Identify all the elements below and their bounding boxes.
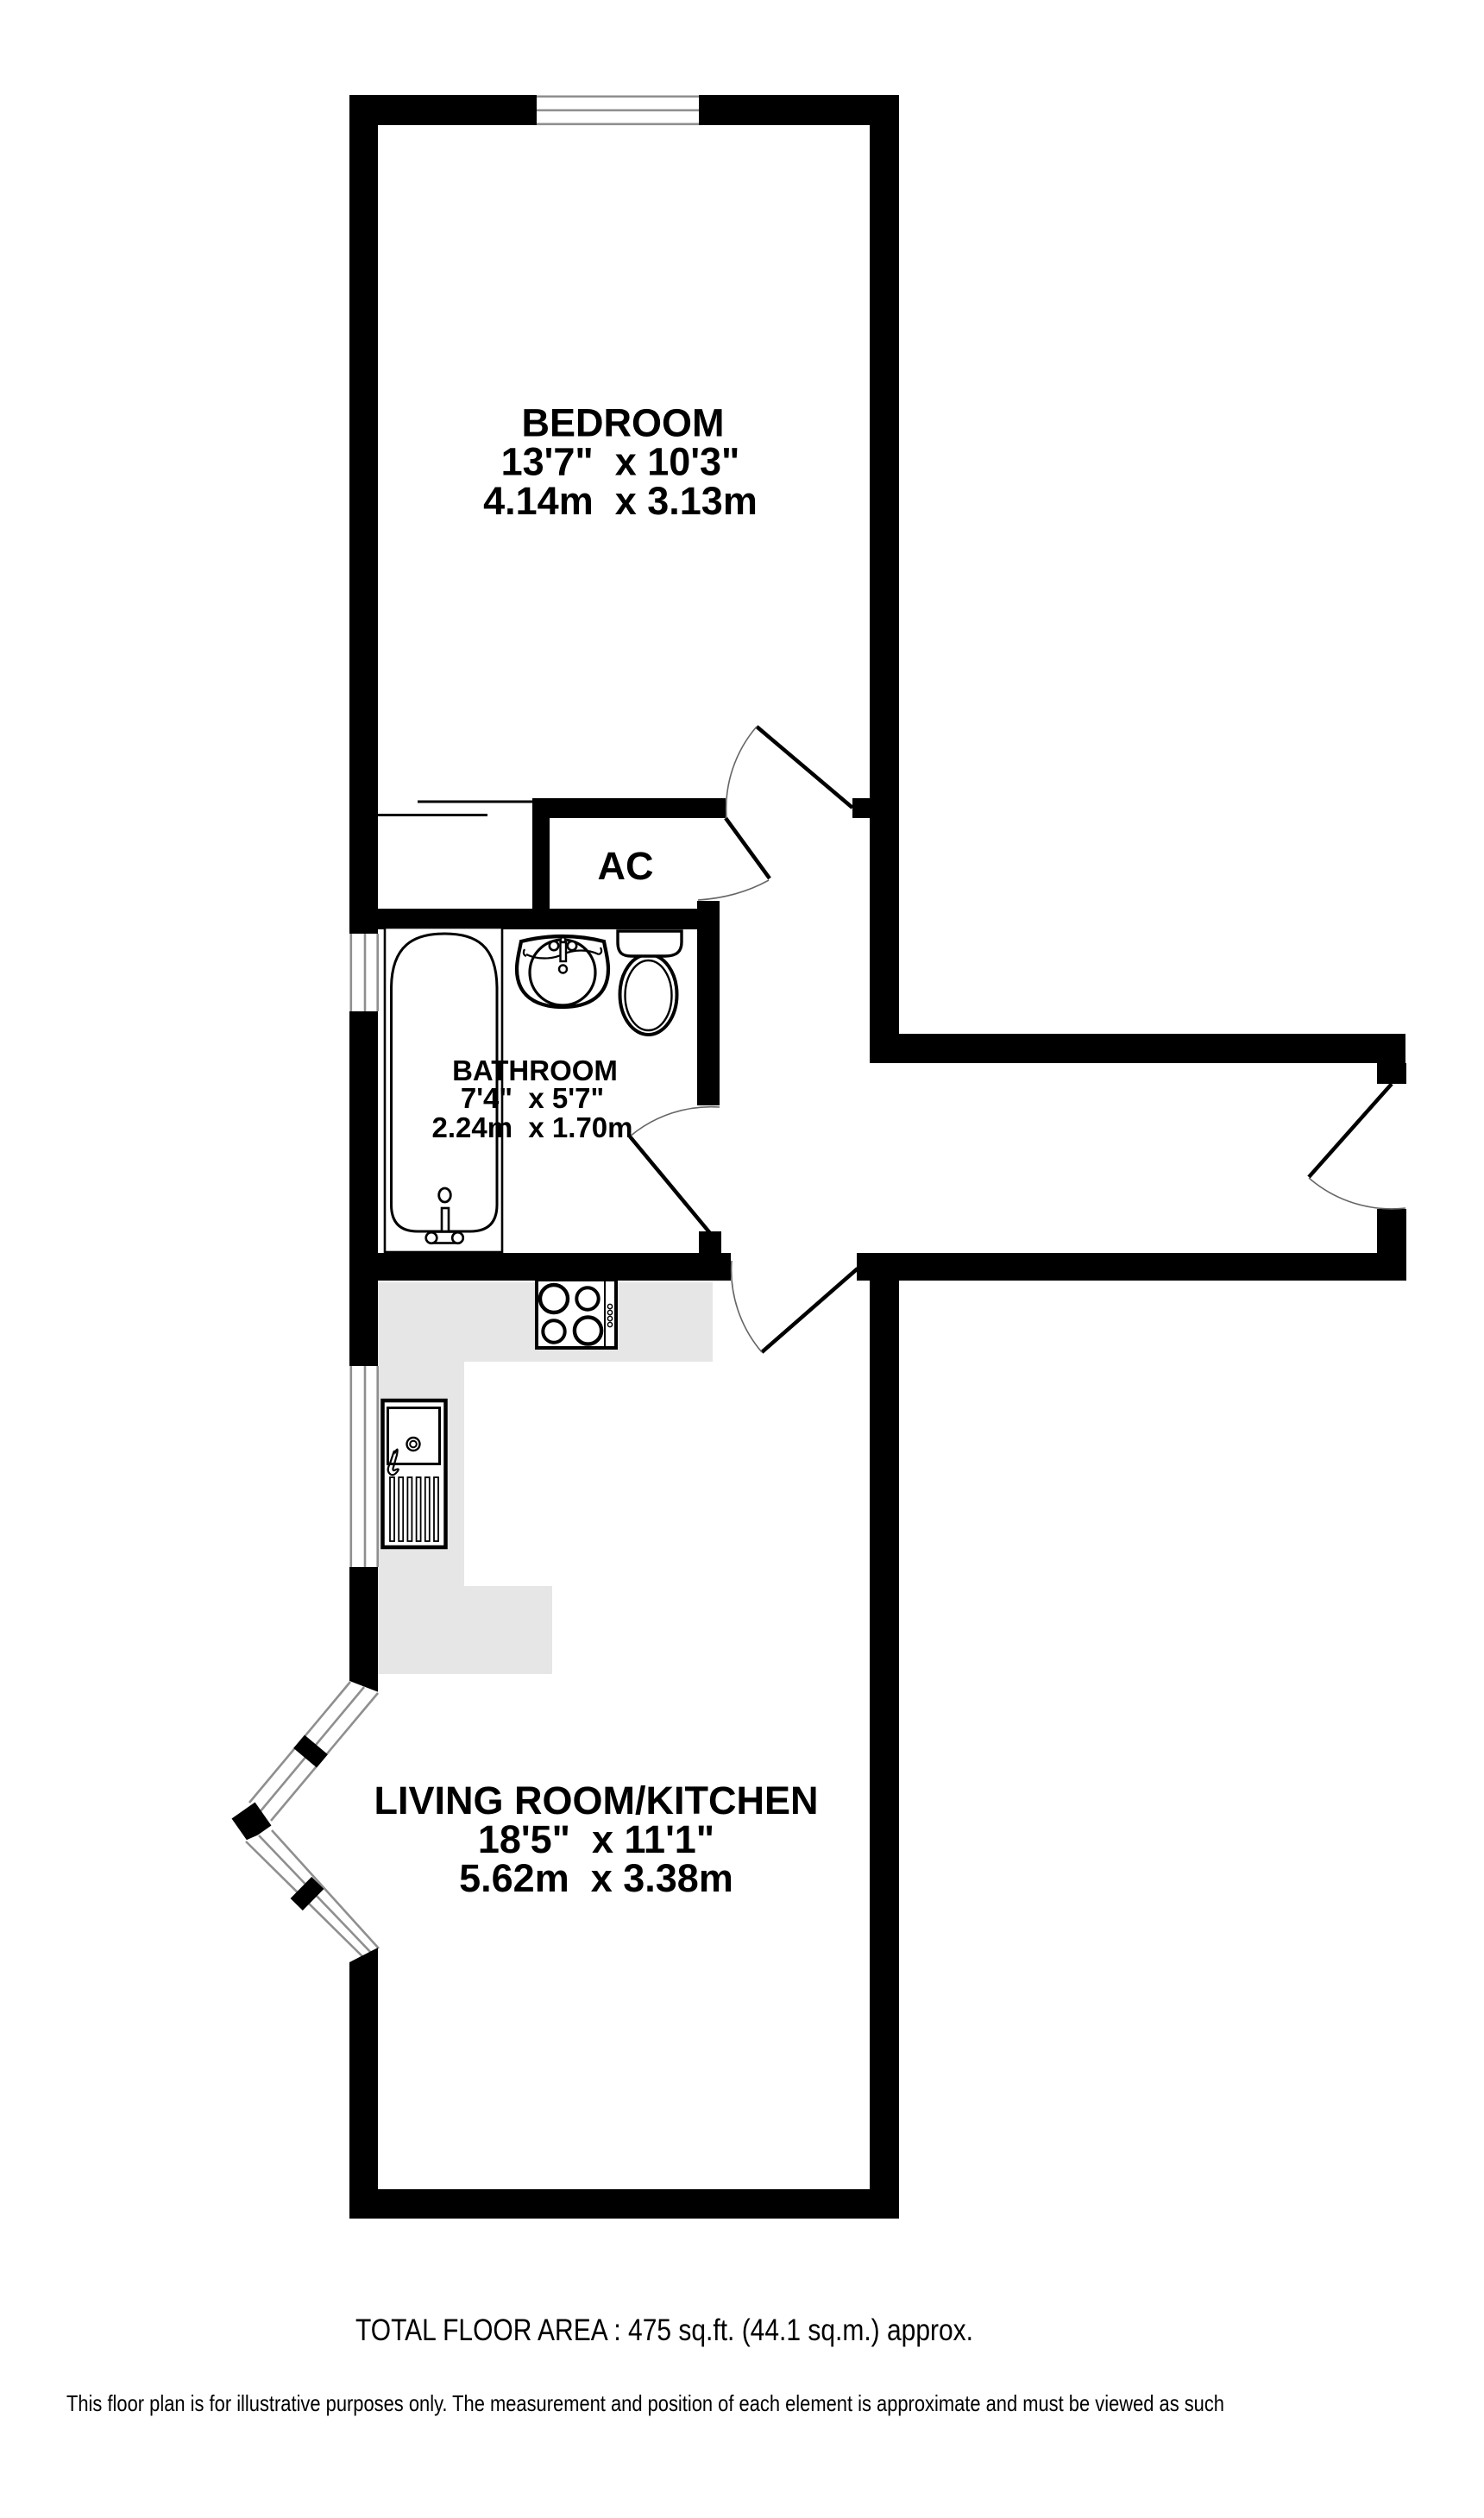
- svg-text:AC: AC: [598, 844, 654, 888]
- svg-text:LIVING ROOM/KITCHEN: LIVING ROOM/KITCHEN: [374, 1778, 819, 1822]
- svg-text:4.14m x 3.13m: 4.14m x 3.13m: [483, 479, 758, 523]
- svg-text:18'5" x 11'1": 18'5" x 11'1": [478, 1817, 714, 1861]
- svg-text:TOTAL FLOOR AREA : 475 sq.ft.: TOTAL FLOOR AREA : 475 sq.ft. (44.1 sq.m…: [355, 2313, 973, 2347]
- svg-text:BEDROOM: BEDROOM: [522, 401, 725, 445]
- svg-text:This floor plan is for illustr: This floor plan is for illustrative purp…: [66, 2390, 1224, 2416]
- svg-text:5.62m x 3.38m: 5.62m x 3.38m: [459, 1856, 733, 1900]
- svg-text:7'4" x 5'7": 7'4" x 5'7": [461, 1082, 604, 1114]
- svg-text:2.24m x 1.70m: 2.24m x 1.70m: [432, 1111, 633, 1143]
- svg-text:13'7" x 10'3": 13'7" x 10'3": [501, 440, 740, 484]
